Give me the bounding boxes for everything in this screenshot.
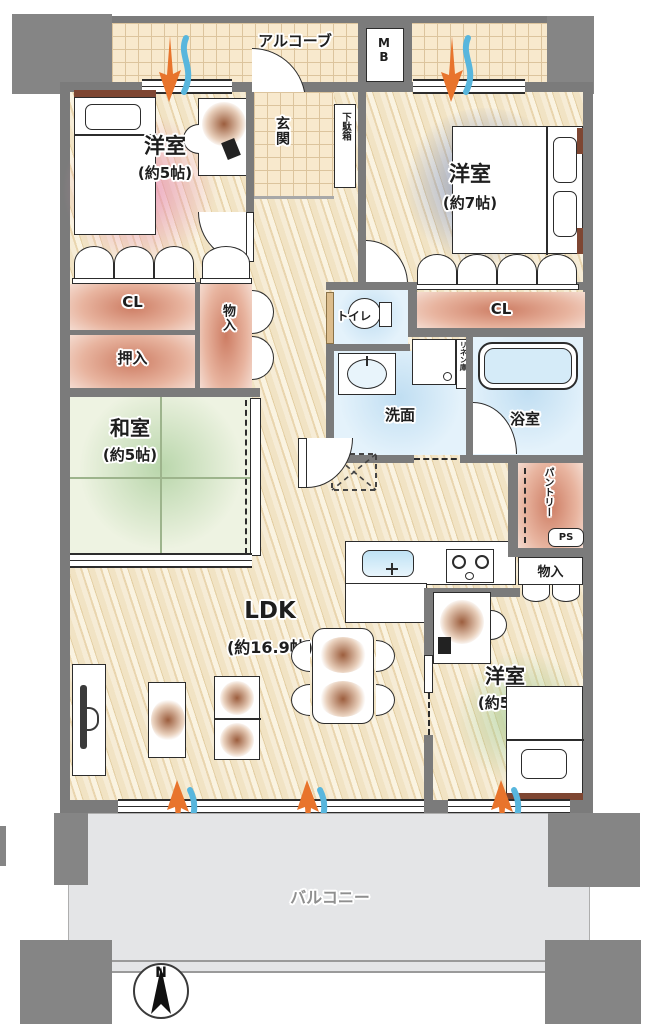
closet-door bbox=[114, 246, 154, 280]
closet-ne-label: CL bbox=[417, 300, 585, 318]
table-shade bbox=[151, 699, 185, 741]
alcove-label: アルコーブ bbox=[225, 30, 365, 51]
tv-icon bbox=[80, 685, 87, 749]
blanket-line bbox=[507, 739, 584, 741]
tv-board bbox=[72, 664, 106, 776]
wall-oshiire-washitsu bbox=[60, 388, 260, 397]
washitsu-door-swing bbox=[245, 400, 247, 554]
closet-door bbox=[537, 254, 577, 288]
table-shade bbox=[319, 637, 367, 673]
kitchen-counter-return bbox=[345, 583, 427, 623]
closet-nw-label: CL bbox=[70, 293, 195, 311]
entrance-label: 玄関 bbox=[272, 116, 292, 146]
sofa-shade bbox=[220, 723, 254, 757]
blanket-line bbox=[546, 127, 548, 255]
closet-door bbox=[457, 254, 497, 288]
washroom-entry-dashes bbox=[414, 458, 466, 460]
bedroom-ne-name: 洋室 bbox=[395, 158, 545, 188]
entrance-floor bbox=[254, 92, 334, 196]
sofa-shade bbox=[220, 681, 254, 715]
wall-bedroom-se-left-upper bbox=[424, 597, 433, 655]
ldk-name: LDK bbox=[195, 598, 345, 624]
pillow bbox=[553, 191, 577, 237]
bedroom-se-name: 洋室 bbox=[435, 660, 575, 689]
meter-box-label: MB bbox=[377, 36, 391, 64]
wall-pantry-left bbox=[508, 455, 518, 557]
bedroom-nw-name: 洋室 bbox=[95, 130, 235, 160]
toilet-tank bbox=[379, 302, 392, 327]
ps-badge: PS bbox=[548, 528, 584, 547]
dining-table bbox=[312, 628, 374, 724]
storage-se-door bbox=[552, 585, 580, 602]
closet-door bbox=[154, 246, 194, 280]
pillar-bottom-right bbox=[545, 940, 641, 1024]
vent-arrow-icon bbox=[432, 34, 488, 106]
bedroom-ne-size: (約7帖) bbox=[395, 192, 545, 213]
stove-burner bbox=[452, 555, 466, 569]
closet-door bbox=[497, 254, 537, 288]
wall-hall-right bbox=[358, 92, 366, 290]
storage-hall-door bbox=[202, 246, 250, 280]
bed-frame-top bbox=[577, 128, 583, 154]
washitsu-sliding-door bbox=[250, 398, 261, 556]
bedroom-se-slider bbox=[424, 655, 433, 693]
bed-frame-bottom bbox=[577, 228, 583, 254]
outer-wall-top-line bbox=[112, 16, 547, 23]
washitsu-south-opening bbox=[70, 553, 252, 568]
bedroom-se-partition-dashes bbox=[428, 693, 430, 735]
storage-se-door bbox=[522, 585, 550, 602]
neighbor-wall-sliver bbox=[0, 826, 6, 866]
shoe-box-label: 下駄箱 bbox=[338, 112, 352, 141]
storage-se-label: 物入 bbox=[518, 561, 583, 580]
balcony-wall-left bbox=[54, 813, 88, 885]
stove-burner bbox=[475, 555, 489, 569]
bed-double bbox=[452, 126, 583, 254]
table-shade bbox=[319, 681, 367, 717]
pillow bbox=[553, 137, 577, 183]
wall-entrance-left bbox=[246, 92, 254, 214]
wall-wash-bath bbox=[466, 336, 473, 458]
washitsu-name: 和室 bbox=[55, 412, 205, 441]
stove bbox=[446, 549, 494, 583]
tv-stand bbox=[87, 707, 99, 731]
kitchen-sink bbox=[362, 550, 414, 577]
sink-tap bbox=[391, 563, 393, 575]
tatami-line bbox=[160, 477, 162, 555]
coffee-table bbox=[148, 682, 186, 758]
north-arrow-icon: N bbox=[128, 946, 194, 1024]
storage-hall bbox=[200, 284, 252, 388]
wall-cl-bath bbox=[408, 328, 593, 337]
balcony-wall-right bbox=[548, 813, 640, 887]
laptop-icon bbox=[438, 637, 451, 654]
bedroom-nw-size: (約5帖) bbox=[95, 162, 235, 183]
pantry-label: パントリー bbox=[540, 467, 555, 517]
pillow bbox=[85, 104, 141, 130]
floor-plan: アルコーブ MB 洋室 (約5帖) 玄関 下駄箱 洋室 bbox=[0, 0, 653, 1024]
closet-door-track bbox=[415, 284, 579, 290]
vent-arrow-icon bbox=[150, 34, 206, 106]
toilet-label: トイレ bbox=[328, 308, 380, 324]
washroom-label: 洗面 bbox=[365, 404, 435, 425]
pillow bbox=[521, 749, 567, 779]
closet-door bbox=[417, 254, 457, 288]
bed-headboard bbox=[74, 90, 156, 97]
bathtub-inner bbox=[484, 348, 572, 384]
wall-right bbox=[583, 82, 593, 812]
wall-pantry-bottom bbox=[508, 548, 593, 557]
pillar-bottom-left bbox=[20, 940, 112, 1024]
wall-toilet-wash bbox=[326, 344, 410, 351]
entrance-step bbox=[254, 196, 334, 199]
storage-hall-label: 物入 bbox=[218, 304, 237, 332]
compass-north-label: N bbox=[155, 965, 167, 981]
stove-knob bbox=[465, 572, 474, 580]
wall-toilet-right bbox=[408, 282, 417, 328]
washing-machine-drain bbox=[443, 372, 452, 381]
sofa bbox=[214, 676, 260, 760]
vanity-tap bbox=[366, 356, 368, 366]
balcony-label: バルコニー bbox=[230, 884, 430, 908]
wall-water-bottom-right bbox=[460, 455, 593, 463]
oshiire-label: 押入 bbox=[70, 347, 195, 368]
sofa-seam bbox=[215, 718, 261, 720]
bathtub bbox=[478, 342, 578, 390]
ldk-door-leaf bbox=[298, 438, 307, 488]
wall-bedroom-se-left-lower bbox=[424, 735, 433, 800]
closet-door bbox=[74, 246, 114, 280]
pantry-door-dashes bbox=[524, 468, 526, 543]
washitsu-size: (約5帖) bbox=[55, 444, 205, 465]
